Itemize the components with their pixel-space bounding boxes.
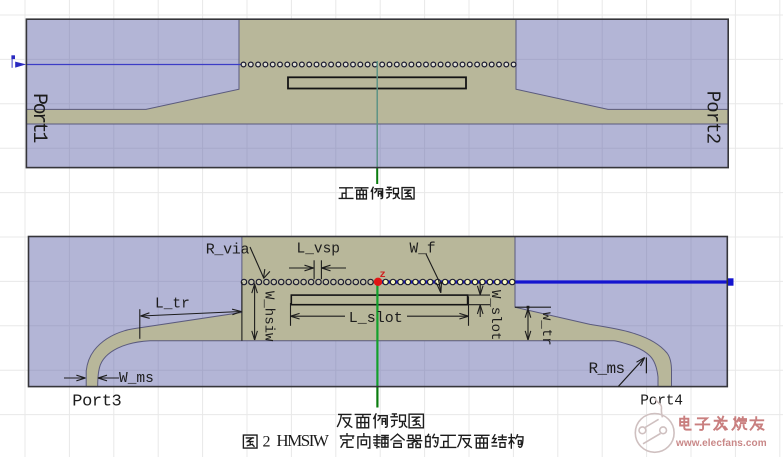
svg-text:2: 2 [263, 433, 271, 450]
svg-text:W_f: W_f [410, 242, 436, 258]
svg-text:Port1: Port1 [27, 93, 50, 143]
svg-text:L_slot: L_slot [349, 310, 403, 327]
svg-text:www.elecfans.com: www.elecfans.com [675, 438, 767, 449]
svg-text:Port2: Port2 [702, 91, 724, 144]
svg-text:HMSIW: HMSIW [276, 431, 330, 450]
svg-text:W_slot: W_slot [487, 290, 503, 340]
svg-text:w_tr: w_tr [538, 312, 554, 346]
svg-text:L_vsp: L_vsp [297, 242, 341, 258]
svg-text:W_hsiw: W_hsiw [261, 291, 277, 342]
svg-text:Port3: Port3 [72, 392, 121, 411]
svg-text:z: z [380, 269, 386, 281]
svg-text:L_tr: L_tr [155, 297, 190, 313]
svg-text:R_via: R_via [206, 242, 250, 259]
svg-text:R_ms: R_ms [589, 360, 625, 378]
svg-text:W_ms: W_ms [119, 371, 154, 387]
